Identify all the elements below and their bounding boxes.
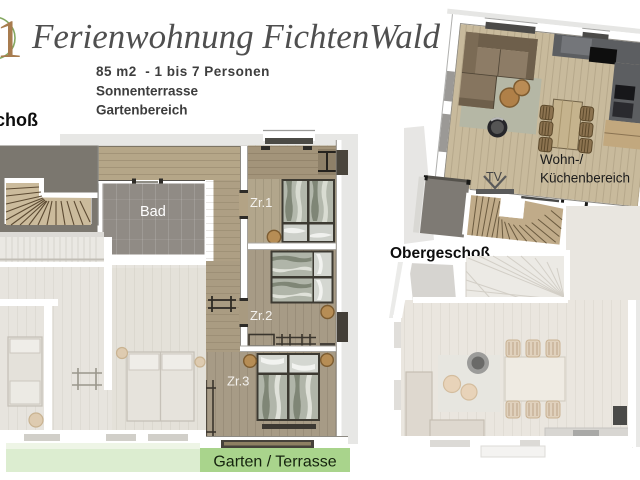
svg-text:1: 1 — [0, 9, 23, 69]
svg-text:Zr.1: Zr.1 — [250, 195, 272, 210]
svg-text:85 m2 - 1 bis 7 Personen: 85 m2 - 1 bis 7 Personen — [96, 64, 270, 79]
svg-text:Garten / Terrasse: Garten / Terrasse — [213, 454, 336, 471]
svg-text:Sonnenterrasse: Sonnenterrasse — [96, 84, 199, 99]
svg-text:Zr.3: Zr.3 — [227, 374, 249, 389]
svg-text:Ferienwohnung FichtenWald: Ferienwohnung FichtenWald — [31, 17, 440, 56]
svg-text:Bad: Bad — [140, 204, 166, 220]
svg-text:Erdgeschoß: Erdgeschoß — [0, 110, 38, 130]
svg-text:Wohn-/: Wohn-/ — [540, 152, 584, 167]
svg-text:Zr.2: Zr.2 — [250, 308, 272, 323]
svg-text:Gartenbereich: Gartenbereich — [96, 103, 188, 118]
svg-text:Küchenbereich: Küchenbereich — [540, 171, 630, 186]
